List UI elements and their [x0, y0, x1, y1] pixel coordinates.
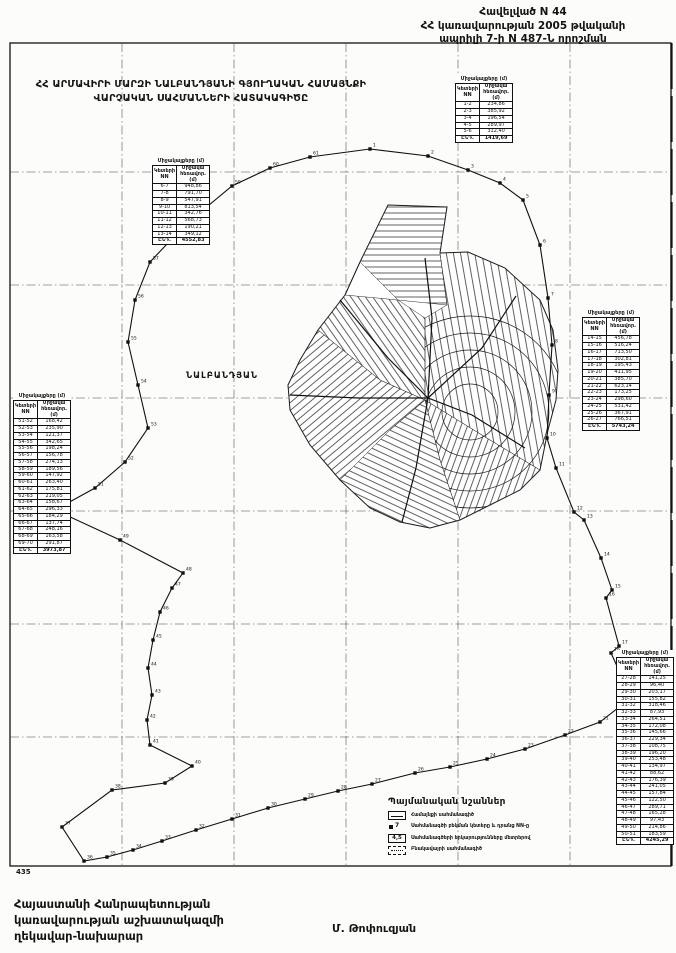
svg-text:7: 7 [551, 292, 554, 298]
table-header-cell: Կետերի NN [456, 84, 480, 102]
svg-text:4: 4 [503, 177, 506, 183]
table-cell: ԸՆԴ. [456, 136, 480, 143]
table-header-cell: Կետերի NN [583, 318, 607, 336]
distance-table: Կետերի NNՄիջակա հեռավոր. (մ)51-52168,425… [13, 400, 71, 554]
table-row: 29-30203,17 [617, 689, 674, 696]
legend-item-label: Բնակավայրի սահմանագիծ [411, 847, 482, 852]
table-row: 3-4196,54 [456, 115, 513, 122]
table-total-row: ԸՆԴ.4552,83 [153, 238, 210, 245]
table-cell: ԸՆԴ. [153, 238, 177, 245]
table-row: 37-38108,75 [617, 743, 674, 750]
settlement-label: ՆԱԼԲԱՆԴՅԱՆ [186, 371, 258, 381]
table-cell: 713,50 [607, 349, 640, 356]
svg-text:2: 2 [431, 150, 434, 156]
table-caption: Միջակայքերը (մ) [152, 158, 210, 164]
legend-item: Համայնքի սահմանագիծ [388, 811, 558, 820]
table-row: 61-62175,81 [14, 486, 71, 493]
svg-text:25: 25 [453, 761, 459, 767]
map-canvas: 1234567891011121314151617181920212223242… [0, 0, 676, 953]
table-cell: 121,37 [38, 432, 71, 439]
table-cell: 49-50 [617, 824, 641, 831]
svg-text:27: 27 [375, 778, 381, 784]
footer-signatory-block: Հայաստանի Հանրապետության կառավարության ա… [14, 896, 224, 944]
table-caption: Միջակայքերը (մ) [582, 310, 640, 316]
svg-text:1: 1 [373, 143, 376, 149]
table-cell: 291,87 [38, 540, 71, 547]
table-cell: 88,62 [641, 770, 674, 777]
table-cell: 1419,69 [480, 136, 513, 143]
svg-text:24: 24 [490, 753, 496, 759]
table-cell: 108,75 [641, 743, 674, 750]
svg-text:15: 15 [615, 584, 621, 590]
svg-text:3: 3 [471, 164, 474, 170]
table-total-row: ԸՆԴ.5743,24 [583, 424, 640, 431]
table-caption: Միջակայքերը (մ) [13, 393, 71, 399]
table-row: 65-66184,29 [14, 513, 71, 520]
table-cell: 264,51 [641, 716, 674, 723]
footer-line3: ղեկավար-նախարար [14, 928, 224, 944]
svg-text:5: 5 [526, 194, 529, 200]
svg-text:52: 52 [128, 456, 134, 462]
footer-line2: կառավարության աշխատակազմի [14, 912, 224, 928]
table-cell: 203,17 [641, 689, 674, 696]
svg-text:9: 9 [552, 389, 555, 395]
svg-text:34: 34 [136, 844, 142, 850]
table-header-cell: Կետերի NN [14, 401, 38, 419]
table-cell: 16-17 [583, 349, 607, 356]
table-header-cell: Միջակա հեռավոր. (մ) [480, 84, 513, 102]
table-row: 16-17713,50 [583, 349, 640, 356]
table-cell: 4552,83 [177, 238, 210, 245]
table-header-cell: Կետերի NN [617, 658, 641, 676]
table-cell: ԸՆԴ. [583, 424, 607, 431]
svg-text:55: 55 [131, 336, 137, 342]
svg-text:51: 51 [98, 482, 104, 488]
svg-text:53: 53 [151, 422, 157, 428]
svg-text:33: 33 [165, 835, 171, 841]
table-cell: 12-13 [153, 224, 177, 231]
svg-text:37: 37 [65, 821, 71, 827]
svg-text:49: 49 [123, 534, 129, 540]
table-row: 57-58274,13 [14, 459, 71, 466]
svg-text:17: 17 [622, 640, 628, 646]
table-cell: 20-21 [583, 376, 607, 383]
table-cell: 53-54 [14, 432, 38, 439]
map-title-line2: ՎԱՐՉԱԿԱՆ ՍԱՀՄԱՆՆԵՐԻ ՀԱՏԱԿԱԳԻԾԸ [26, 92, 376, 106]
svg-text:30: 30 [271, 802, 277, 808]
svg-text:8: 8 [555, 339, 558, 345]
table-cell: 33-34 [617, 716, 641, 723]
svg-text:16: 16 [609, 592, 615, 598]
table-cell: 24-25 [583, 403, 607, 410]
scanned-map-page: Հավելված N 44 ՀՀ կառավարության 2005 թվակ… [0, 0, 676, 953]
table-caption: Միջակայքերը (մ) [616, 650, 674, 656]
svg-text:61: 61 [313, 151, 319, 157]
table-cell: ԸՆԴ. [617, 838, 641, 845]
svg-text:26: 26 [418, 767, 424, 773]
svg-text:48: 48 [186, 567, 192, 573]
svg-text:28: 28 [341, 785, 347, 791]
table-row: 33-34264,51 [617, 716, 674, 723]
settlement-line-icon [388, 846, 406, 855]
svg-text:31: 31 [235, 813, 241, 819]
svg-text:54: 54 [141, 379, 147, 385]
svg-text:42: 42 [150, 714, 156, 720]
svg-text:46: 46 [163, 606, 169, 612]
table-cell: 3-4 [456, 115, 480, 122]
table-cell: 8-9 [153, 197, 177, 204]
table-cell: 196,54 [480, 115, 513, 122]
signature-name: Մ. Թոփուզյան [332, 922, 416, 935]
table-cell: 214,86 [641, 824, 674, 831]
svg-text:59: 59 [235, 180, 241, 186]
legend-items: Համայնքի սահմանագիծ7Սահմանագծի բեկման կե… [388, 811, 558, 855]
distance-table: Կետերի NNՄիջակա հեռավոր. (մ)14-15456,781… [582, 317, 640, 431]
table-caption: Միջակայքերը (մ) [455, 76, 513, 82]
table-header-cell: Միջակա հեռավոր. (մ) [38, 401, 71, 419]
table-total-row: ԸՆԴ.1419,69 [456, 136, 513, 143]
table-cell: 3973,87 [38, 547, 71, 554]
svg-text:60: 60 [273, 162, 279, 168]
table-row: 49-50214,86 [617, 824, 674, 831]
legend: Պայմանական նշաններ Համայնքի սահմանագիծ7Ս… [388, 797, 558, 857]
svg-text:32: 32 [199, 824, 205, 830]
table-row: 69-70291,87 [14, 540, 71, 547]
table-cell: 29-30 [617, 689, 641, 696]
table-cell: 274,13 [38, 459, 71, 466]
distance-value-icon: 4,5 [388, 834, 406, 843]
svg-text:21: 21 [603, 716, 609, 722]
table-row: 41-4288,62 [617, 770, 674, 777]
svg-text:43: 43 [155, 689, 161, 695]
sheet-number: 435 [16, 868, 31, 876]
svg-text:35: 35 [110, 851, 116, 857]
table-cell: 547,91 [177, 197, 210, 204]
svg-text:39: 39 [168, 777, 174, 783]
table-row: 8-9547,91 [153, 197, 210, 204]
boundary-line-icon [388, 811, 406, 820]
table-cell: 184,29 [38, 513, 71, 520]
svg-text:6: 6 [543, 239, 546, 245]
distance-table-right: Միջակայքերը (մ)Կետերի NNՄիջակա հեռավոր. … [582, 310, 640, 431]
svg-text:44: 44 [151, 662, 157, 668]
table-cell: 122,50 [641, 797, 674, 804]
legend-item: 4,5Սահմանագծերի երկարությունները մետրերո… [388, 834, 558, 843]
footer-line1: Հայաստանի Հանրապետության [14, 896, 224, 912]
settlement-parcels [288, 205, 566, 528]
svg-text:22: 22 [568, 729, 574, 735]
distance-table-top-left: Միջակայքերը (մ)Կետերի NNՄիջակա հեռավոր. … [152, 158, 210, 245]
table-header-cell: Միջակա հեռավոր. (մ) [177, 166, 210, 184]
boundary-point-icon: 7 [388, 823, 406, 832]
table-cell: 65-66 [14, 513, 38, 520]
legend-item-label: Համայնքի սահմանագիծ [411, 813, 474, 818]
svg-text:41: 41 [153, 739, 159, 745]
svg-text:45: 45 [156, 634, 162, 640]
svg-text:12: 12 [577, 506, 583, 512]
table-header-cell: Միջակա հեռավոր. (մ) [641, 658, 674, 676]
svg-text:40: 40 [195, 760, 201, 766]
table-cell: ԸՆԴ. [14, 547, 38, 554]
legend-item: 7Սահմանագծի բեկման կետերը և դրանց NN-ը [388, 823, 558, 832]
table-cell: 175,81 [38, 486, 71, 493]
table-cell: 69-70 [14, 540, 38, 547]
distance-table-bottom-right: Միջակայքերը (մ)Կետերի NNՄիջակա հեռավոր. … [616, 650, 674, 845]
map-title: ՀՀ ԱՐՄԱՎԻՐԻ ՄԱՐԶԻ ՆԱԼԲԱՆԴՅԱՆԻ ԳՅՈՒՂԱԿԱՆ … [26, 78, 376, 106]
table-header-cell: Կետերի NN [153, 166, 177, 184]
table-row: 45-46122,50 [617, 797, 674, 804]
table-cell: 41-42 [617, 770, 641, 777]
svg-text:29: 29 [308, 793, 314, 799]
svg-text:56: 56 [138, 294, 144, 300]
distance-table-top-center: Միջակայքերը (մ)Կետերի NNՄիջակա հեռավոր. … [455, 76, 513, 143]
distance-table: Կետերի NNՄիջակա հեռավոր. (մ)27-28141,252… [616, 657, 674, 845]
distance-table: Կետերի NNՄիջակա հեռավոր. (մ)1-2234,862-3… [455, 83, 513, 143]
table-cell: 37-38 [617, 743, 641, 750]
distance-table-left: Միջակայքերը (մ)Կետերի NNՄիջակա հեռավոր. … [13, 393, 71, 554]
svg-text:14: 14 [604, 552, 610, 558]
svg-text:11: 11 [559, 462, 565, 468]
svg-text:10: 10 [550, 432, 556, 438]
table-cell: 61-62 [14, 486, 38, 493]
table-total-row: ԸՆԴ.4245,29 [617, 838, 674, 845]
table-cell: 57-58 [14, 459, 38, 466]
svg-text:47: 47 [175, 582, 181, 588]
table-cell: 531,42 [607, 403, 640, 410]
svg-text:38: 38 [115, 784, 121, 790]
svg-text:57: 57 [153, 256, 159, 262]
table-cell: 4245,29 [641, 838, 674, 845]
legend-item-label: Սահմանագծերի երկարությունները մետրերով [411, 836, 530, 841]
table-row: 20-21385,70 [583, 376, 640, 383]
svg-text:23: 23 [528, 743, 534, 749]
table-cell: 385,70 [607, 376, 640, 383]
table-cell: 190,21 [177, 224, 210, 231]
table-row: 24-25531,42 [583, 403, 640, 410]
legend-title: Պայմանական նշաններ [388, 797, 558, 807]
svg-text:13: 13 [587, 514, 593, 520]
table-header-cell: Միջակա հեռավոր. (մ) [607, 318, 640, 336]
table-total-row: ԸՆԴ.3973,87 [14, 547, 71, 554]
table-cell: 45-46 [617, 797, 641, 804]
community-boundary [55, 149, 632, 861]
distance-table: Կետերի NNՄիջակա հեռավոր. (մ)6-7948,867-8… [152, 165, 210, 245]
boundary-points: 1234567891011121314151617181920212223242… [53, 143, 641, 863]
map-title-line1: ՀՀ ԱՐՄԱՎԻՐԻ ՄԱՐԶԻ ՆԱԼԲԱՆԴՅԱՆԻ ԳՅՈՒՂԱԿԱՆ … [26, 78, 376, 92]
legend-item: Բնակավայրի սահմանագիծ [388, 846, 558, 855]
table-row: 12-13190,21 [153, 224, 210, 231]
table-cell: 5743,24 [607, 424, 640, 431]
table-row: 53-54121,37 [14, 432, 71, 439]
legend-item-label: Սահմանագծի բեկման կետերը և դրանց NN-ը [411, 824, 529, 829]
svg-text:36: 36 [87, 855, 93, 861]
